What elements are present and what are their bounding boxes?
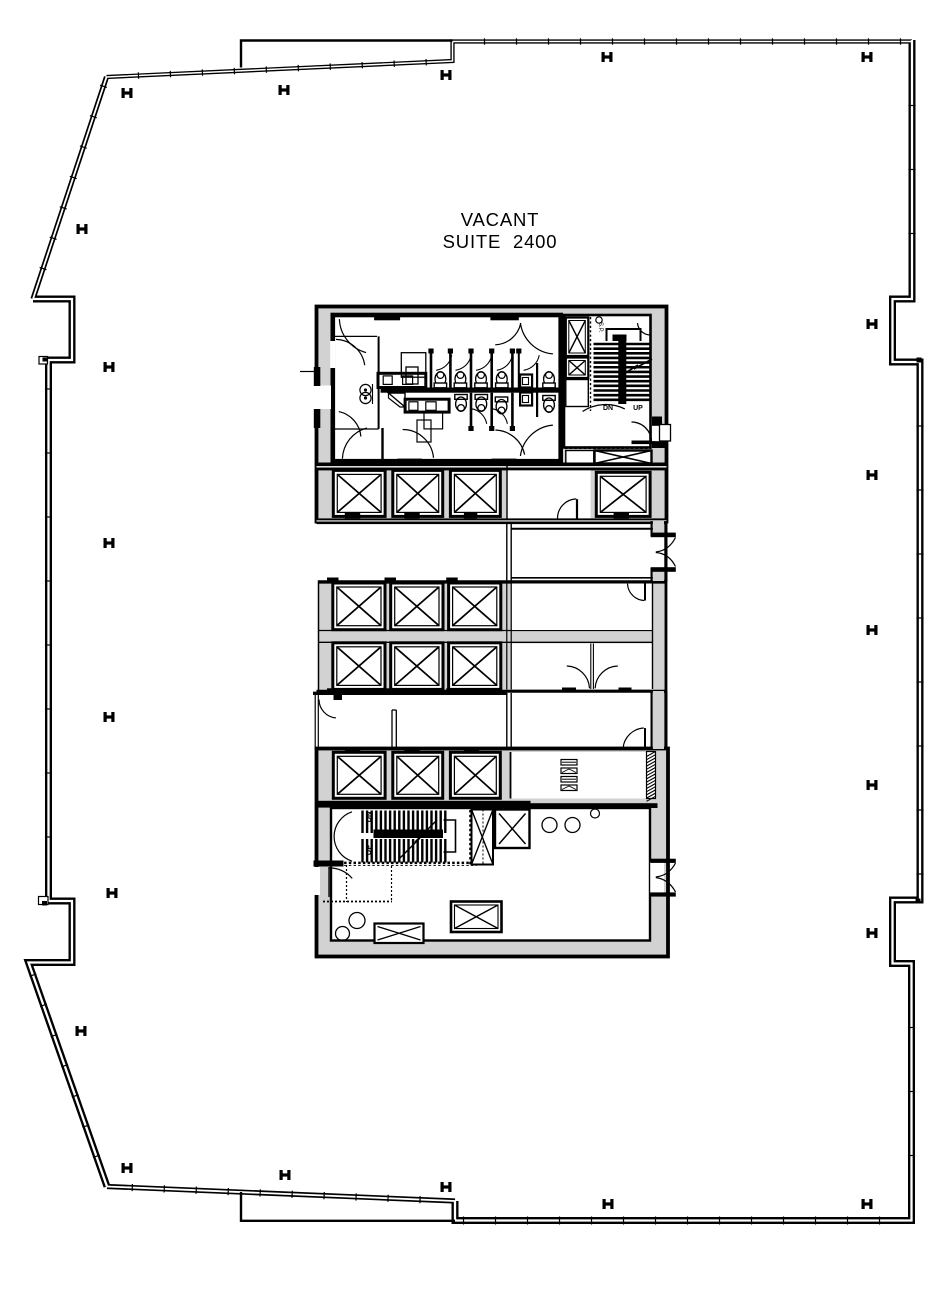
svg-text:SUITE 2400: SUITE 2400	[443, 231, 558, 252]
svg-text:S.P.: S.P.	[597, 322, 603, 333]
svg-text:UP: UP	[364, 845, 373, 855]
svg-text:VACANT: VACANT	[461, 209, 539, 230]
svg-text:DN: DN	[364, 812, 373, 823]
svg-text:UP: UP	[633, 405, 643, 412]
svg-text:DN: DN	[603, 405, 613, 412]
